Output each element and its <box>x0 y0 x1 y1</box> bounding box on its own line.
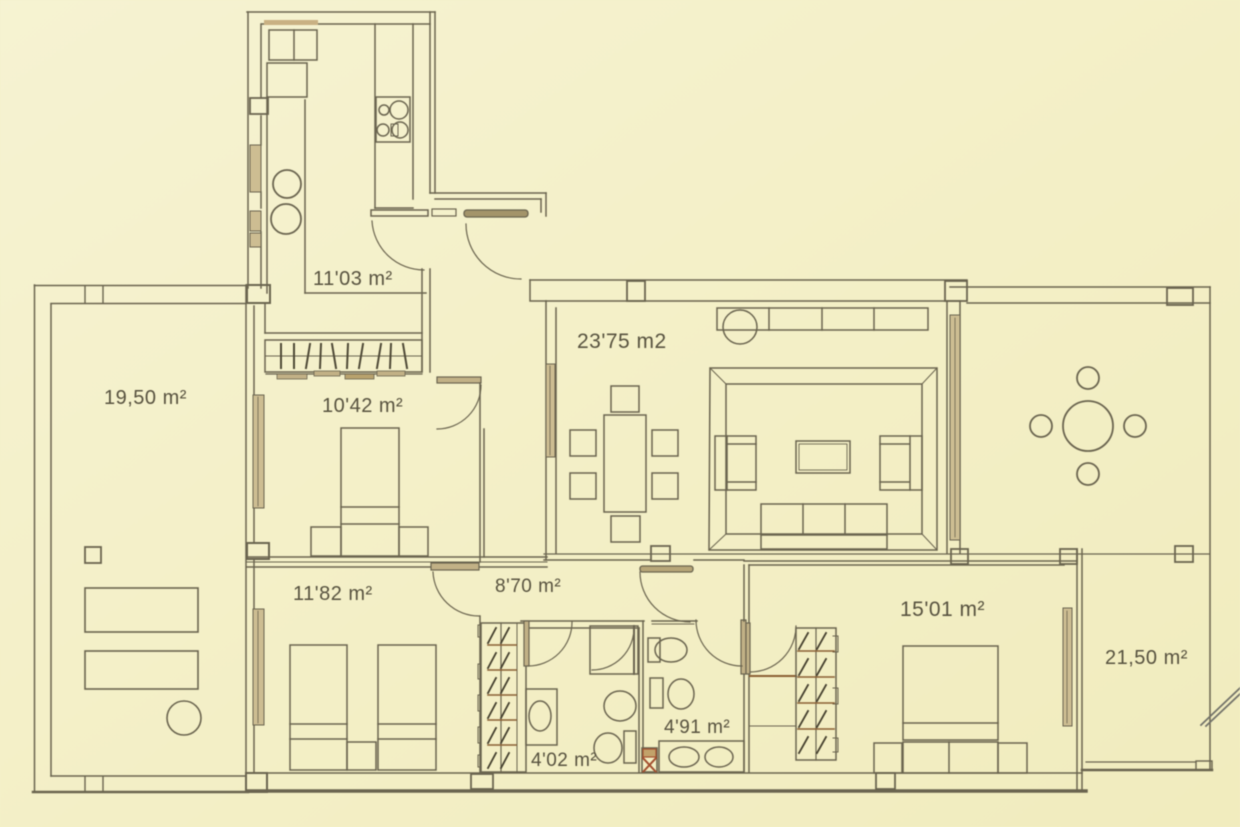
svg-text:8'70 m²: 8'70 m² <box>495 576 561 597</box>
svg-text:23'75 m2: 23'75 m2 <box>577 330 667 353</box>
svg-text:11'03 m²: 11'03 m² <box>313 268 393 290</box>
svg-text:4'91 m²: 4'91 m² <box>664 717 730 738</box>
svg-text:4'02 m²: 4'02 m² <box>531 750 597 771</box>
svg-text:10'42 m²: 10'42 m² <box>322 395 403 417</box>
svg-text:19,50 m²: 19,50 m² <box>104 387 187 409</box>
svg-text:21,50 m²: 21,50 m² <box>1105 647 1188 669</box>
svg-text:11'82 m²: 11'82 m² <box>293 583 373 605</box>
svg-text:15'01 m²: 15'01 m² <box>900 598 985 621</box>
